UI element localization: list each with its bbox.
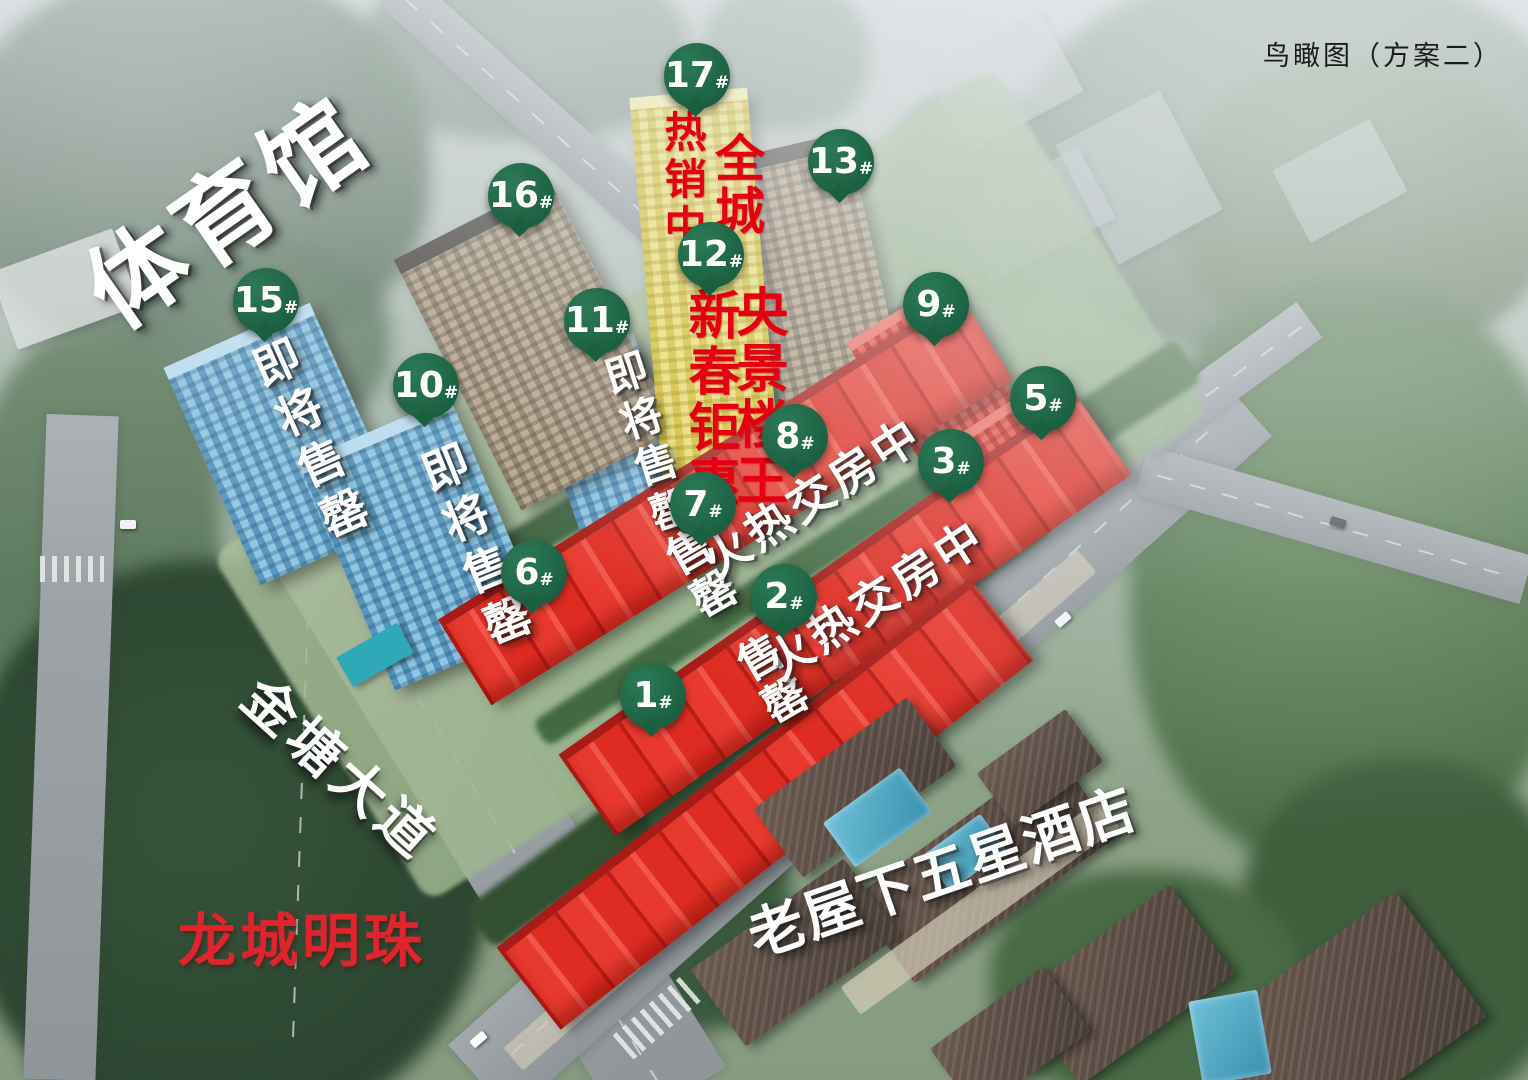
project-name-label: 龙城明珠 (178, 894, 426, 978)
badge-17: 17# (664, 43, 730, 109)
badge-10: 10# (393, 353, 459, 419)
badge-2: 2# (751, 564, 817, 630)
badge-5: 5# (1010, 366, 1076, 432)
badge-16: 16# (488, 163, 554, 229)
aerial-rendering: 鸟瞰图（方案二） 体育馆 热销中 全城 新春钜惠 央景楼王 即将售罄 即将售罄 … (0, 0, 1528, 1080)
badge-3: 3# (918, 429, 984, 495)
badge-9: 9# (903, 272, 969, 338)
badge-12: 12# (678, 222, 744, 288)
badge-8: 8# (762, 404, 828, 470)
badge-7: 7# (670, 472, 736, 538)
badge-15: 15# (233, 268, 299, 334)
plan-title: 鸟瞰图（方案二） (1263, 34, 1503, 73)
badge-6: 6# (501, 540, 567, 606)
badge-13: 13# (808, 129, 874, 195)
crosswalk (40, 556, 104, 582)
hotel-pool (1188, 990, 1272, 1080)
badge-1: 1# (620, 663, 686, 729)
car (120, 520, 136, 529)
badge-11: 11# (564, 288, 630, 354)
